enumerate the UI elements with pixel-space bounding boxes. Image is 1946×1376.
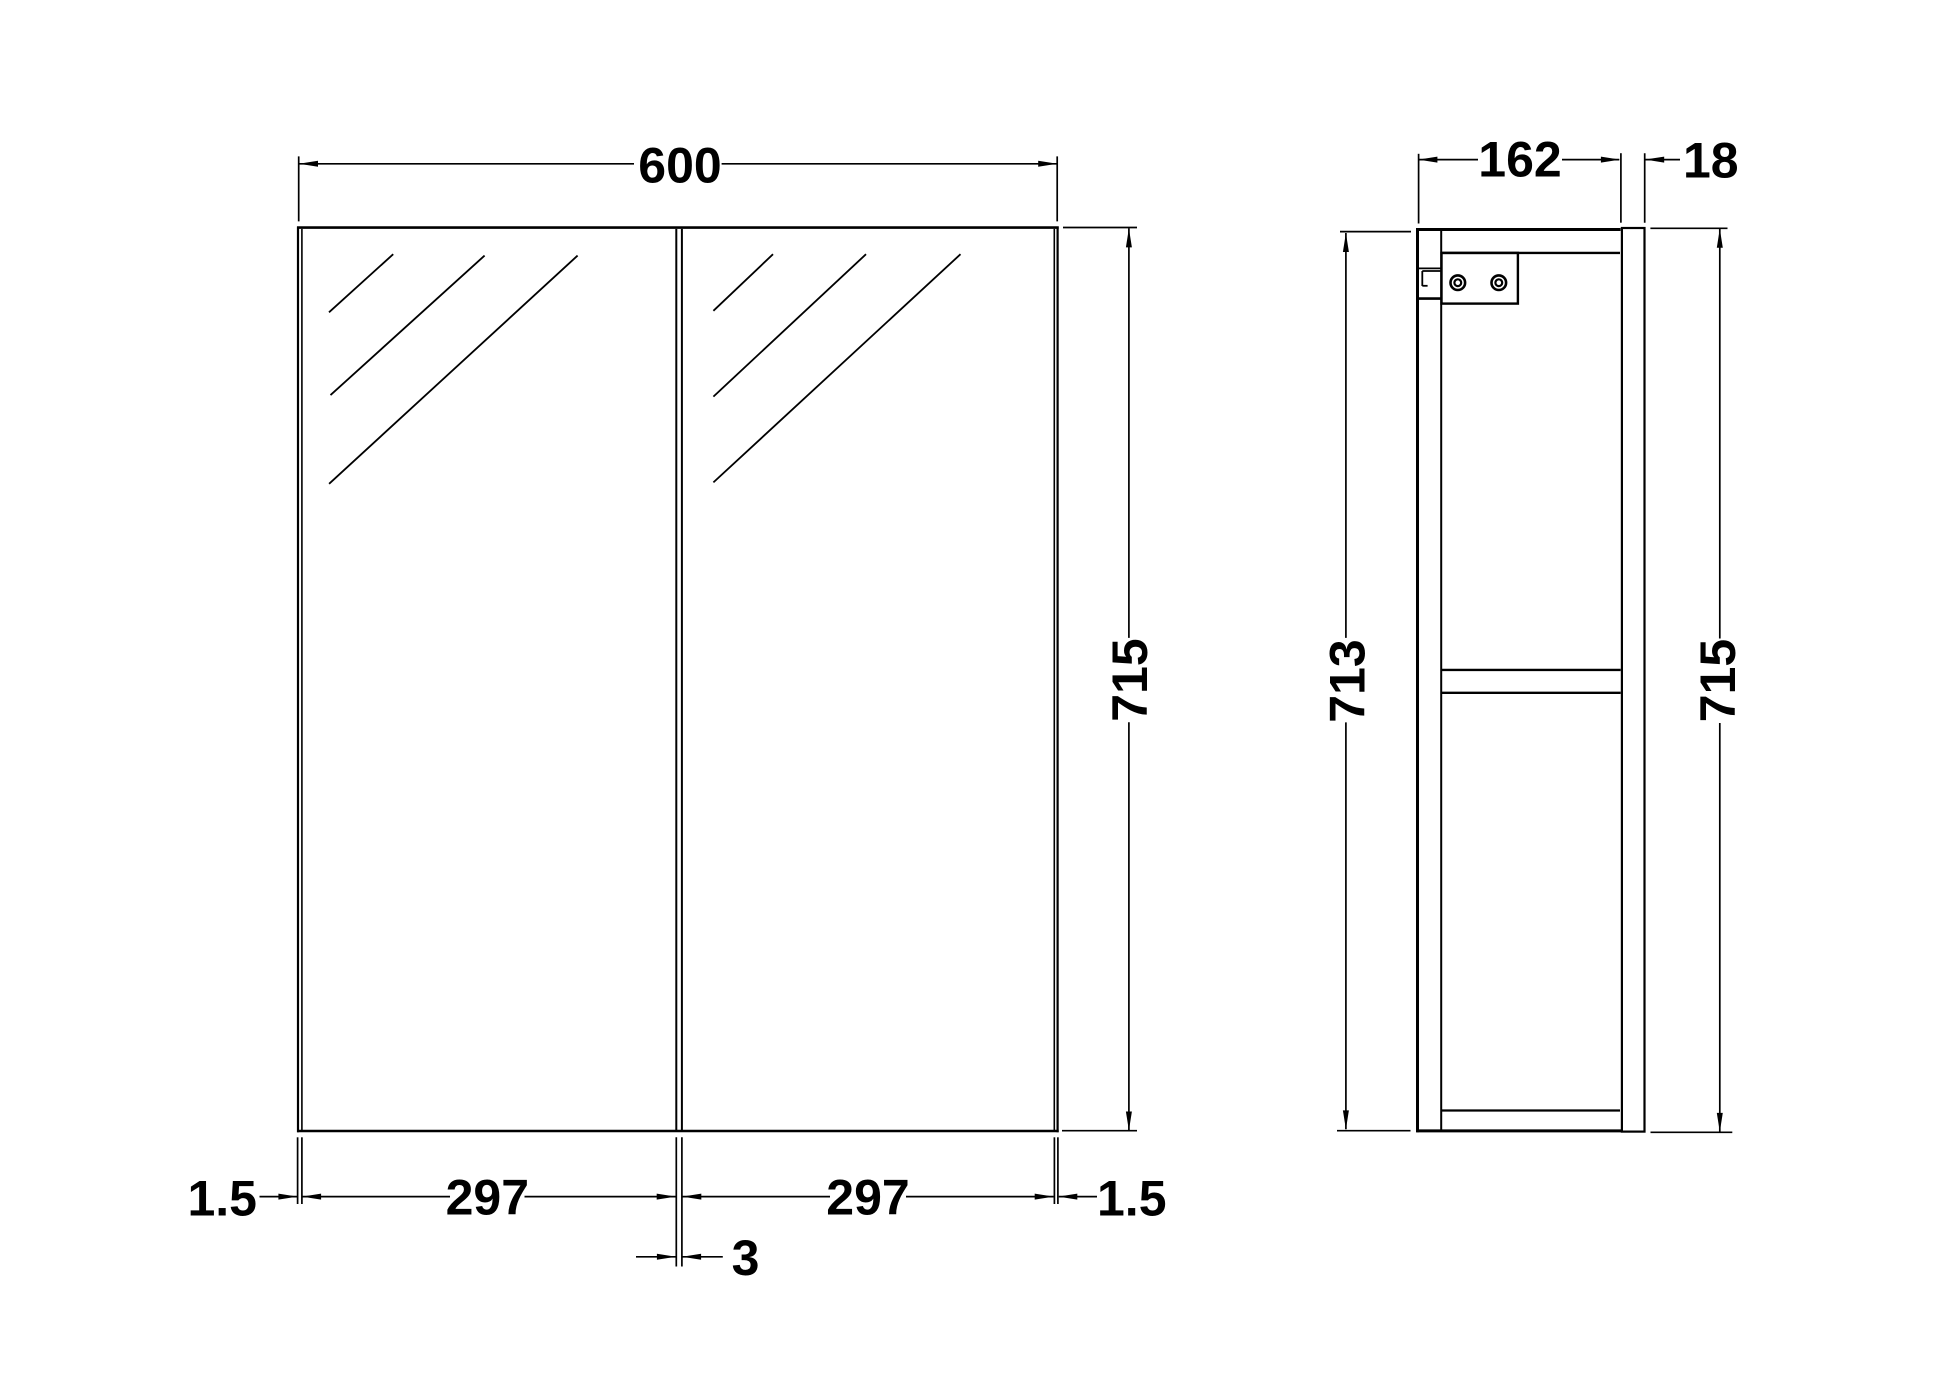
svg-text:713: 713 (1319, 639, 1375, 722)
svg-text:715: 715 (1102, 638, 1158, 721)
svg-text:297: 297 (826, 1170, 909, 1226)
svg-text:600: 600 (638, 137, 721, 193)
svg-text:18: 18 (1683, 133, 1739, 189)
svg-text:1.5: 1.5 (1097, 1170, 1167, 1226)
svg-text:715: 715 (1690, 639, 1746, 722)
svg-text:1.5: 1.5 (187, 1170, 257, 1226)
svg-text:3: 3 (732, 1230, 760, 1286)
svg-text:297: 297 (446, 1170, 529, 1226)
svg-text:162: 162 (1478, 132, 1561, 188)
